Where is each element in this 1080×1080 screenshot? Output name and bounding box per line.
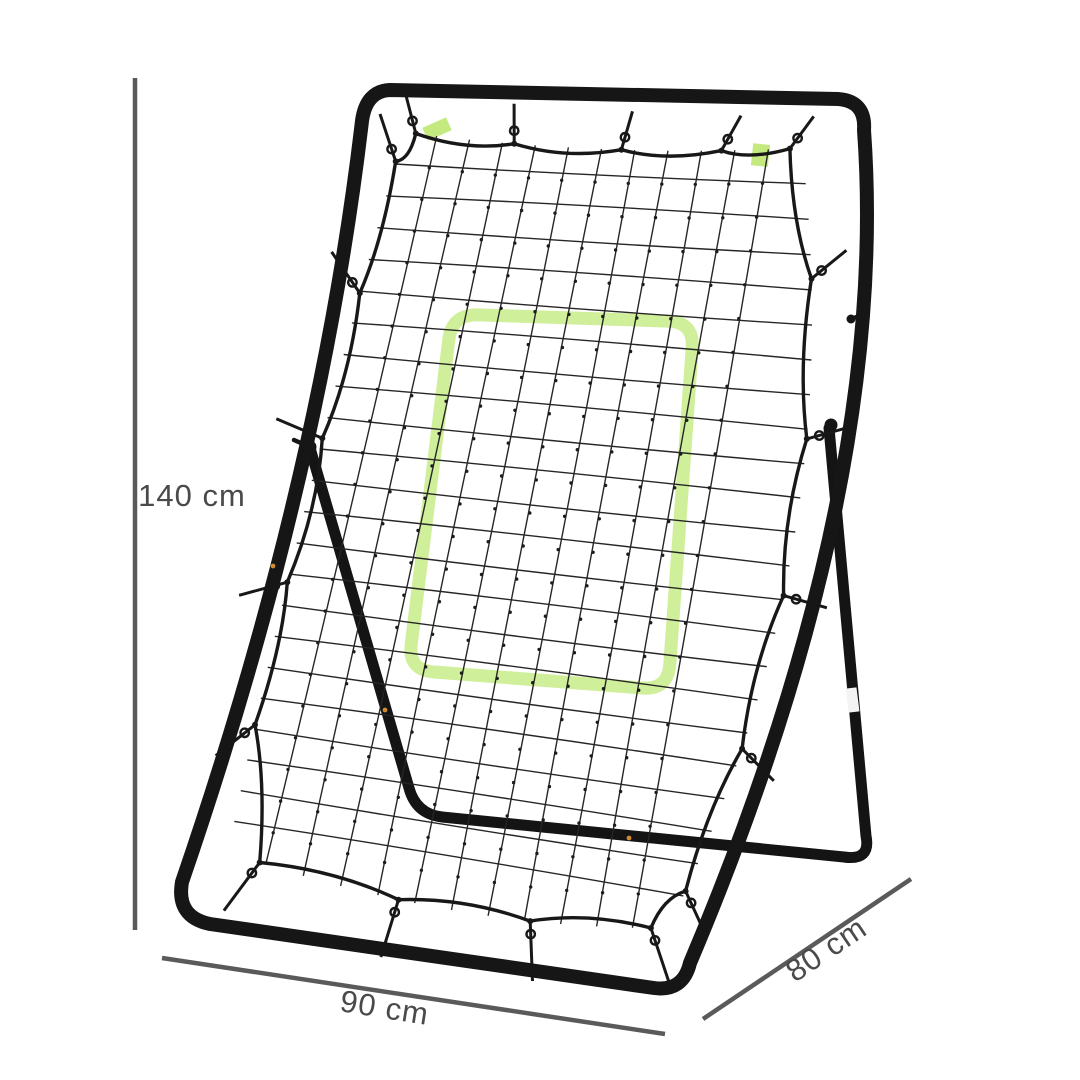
rebounder-figure: 140 cm 90 cm 80 cm — [0, 0, 1080, 1080]
rear-support-stand — [310, 428, 867, 858]
product-dimension-diagram: 140 cm 90 cm 80 cm — [0, 0, 1080, 1080]
width-label: 90 cm — [338, 983, 432, 1032]
depth-label: 80 cm — [779, 910, 873, 989]
net-mesh — [234, 136, 812, 928]
height-label: 140 cm — [138, 478, 246, 513]
dimension-depth: 80 cm — [703, 879, 911, 1019]
dimension-height: 140 cm — [135, 78, 246, 930]
dimension-width: 90 cm — [162, 958, 665, 1034]
